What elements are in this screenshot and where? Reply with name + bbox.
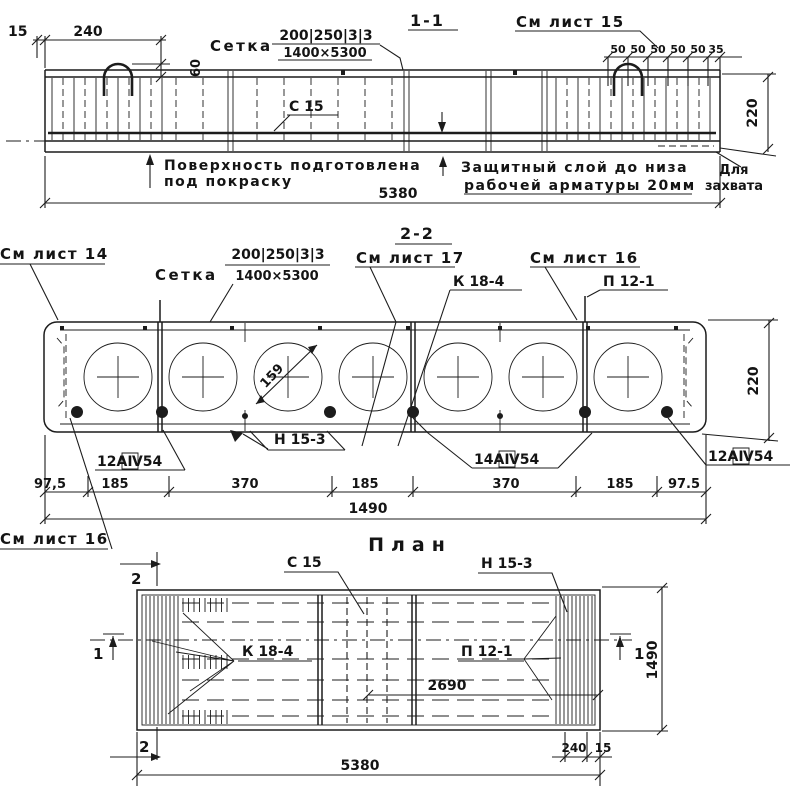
plan-outline [137,590,600,730]
s2-dim-3: 185 [351,477,378,492]
s2-see-sheet-17: См лист 17 [356,249,465,267]
s1-note-cover-2: рабочей арматуры 20мм [464,178,696,194]
plan-title: План [368,534,452,556]
section-2-2-view: См лист 14 Сетка 200|250|3|3 1400×5300 2… [0,224,790,549]
s2-dim-220: 220 [746,366,762,395]
plan-dim-15: 15 [595,741,612,755]
s1-mesh-word: Сетка [210,37,273,55]
s2-dim-220-lines [702,320,778,441]
blueprint-page: 15 240 60 Сетка 200|250|3|3 1400×5300 1-… [0,0,800,800]
s1-note-surface-2: под покраску [164,174,293,190]
plan-label-n15: Н 15-3 [481,556,533,572]
s2-section-title: 2-2 [400,224,435,243]
s1-mesh-top: 200|250|3|3 [279,28,372,44]
s2-dim-1: 185 [101,477,128,492]
s2-dim-1490: 1490 [349,501,388,517]
s1-dim-240: 240 [73,24,102,40]
s1-topdim-1: 50 [630,43,646,56]
s1-label-c15: С 15 [289,99,324,115]
s2-heavy-verticals [158,296,587,432]
s1-topdim-2: 50 [650,43,666,56]
s1-note-grip-2: захвата [705,179,763,194]
s2-label-k18: К 18-4 [453,274,505,290]
s1-note-grip-1: Для [719,163,748,178]
s2-dim-6: 97.5 [668,477,700,492]
s2-void-circles [60,326,678,419]
s1-slab-outline [45,70,720,152]
plan-label-p12: П 12-1 [461,644,513,660]
plan-dashed-verticals [347,597,387,723]
s1-lifting-loops [104,64,642,96]
s1-note-cover-1: Защитный слой до низа [461,160,688,176]
s2-bar-mid: 14АⅣ54 [474,452,539,468]
s2-mesh-top: 200|250|3|3 [231,247,324,263]
s2-mesh-word: Сетка [155,266,218,284]
plan-label-k18: К 18-4 [242,644,294,660]
s2-label-n15: Н 15-3 [274,432,326,448]
s2-class-boxes [122,448,749,469]
plan-dim-5380: 5380 [341,758,380,774]
s2-see-sheet-16: См лист 16 [530,249,639,267]
s2-label-p12: П 12-1 [603,274,655,290]
plan-leader-fans [152,613,561,714]
plan-label-c15: С 15 [287,555,322,571]
plan-dim-2690: 2690 [428,678,467,694]
plan-marker-2-top: 2 [131,570,142,588]
s1-mesh-bottom: 1400×5300 [283,46,366,61]
s2-dim-5: 185 [606,477,633,492]
s2-see-sheet-14: См лист 14 [0,245,109,263]
plan-dim-1490: 1490 [645,640,661,679]
technical-drawing: 15 240 60 Сетка 200|250|3|3 1400×5300 1-… [0,0,800,800]
s1-dim-15: 15 [8,24,27,40]
s1-dim-220: 220 [745,98,761,127]
s2-dim-4: 370 [492,477,519,492]
s2-mesh-bottom: 1400×5300 [235,269,318,284]
s1-dim-60: 60 [189,59,204,77]
plan-marker-1-right: 1 [634,645,645,663]
s1-rebar-hatch [52,70,710,151]
s2-bar-left: 12АⅣ54 [97,454,162,470]
s1-section-title: 1-1 [410,11,445,30]
s2-dim-2: 370 [231,477,258,492]
s1-topdim-3: 50 [670,43,686,56]
s1-note-surface-1: Поверхность подготовлена [164,158,421,174]
s1-topdim-4: 50 [690,43,706,56]
s2-top-leaders [30,264,600,446]
section-1-1-view: 15 240 60 Сетка 200|250|3|3 1400×5300 1-… [6,11,776,208]
s1-dim-lines-topright [604,57,742,86]
s1-topdim-0: 50 [610,43,626,56]
s2-dim-0: 97,5 [34,477,66,492]
s1-dim-5380: 5380 [379,186,418,202]
plan-marker-1-left: 1 [93,645,104,663]
s2-void-diameter: 159 [258,361,287,391]
plan-marker-2-bottom: 2 [139,738,150,756]
s2-see-sheet-16-bottom: См лист 16 [0,530,109,548]
s1-see-sheet-15: См лист 15 [516,13,625,31]
dimension-tick-marks [32,35,774,780]
plan-inner-outline [142,595,595,725]
s2-bar-right: 12АⅣ54 [708,449,773,465]
plan-dim-240: 240 [561,741,586,755]
plan-view: План С 15 Н 15-3 К 18-4 П 12-1 2690 1490… [90,534,668,786]
s1-dim-lines-topleft [33,36,170,77]
